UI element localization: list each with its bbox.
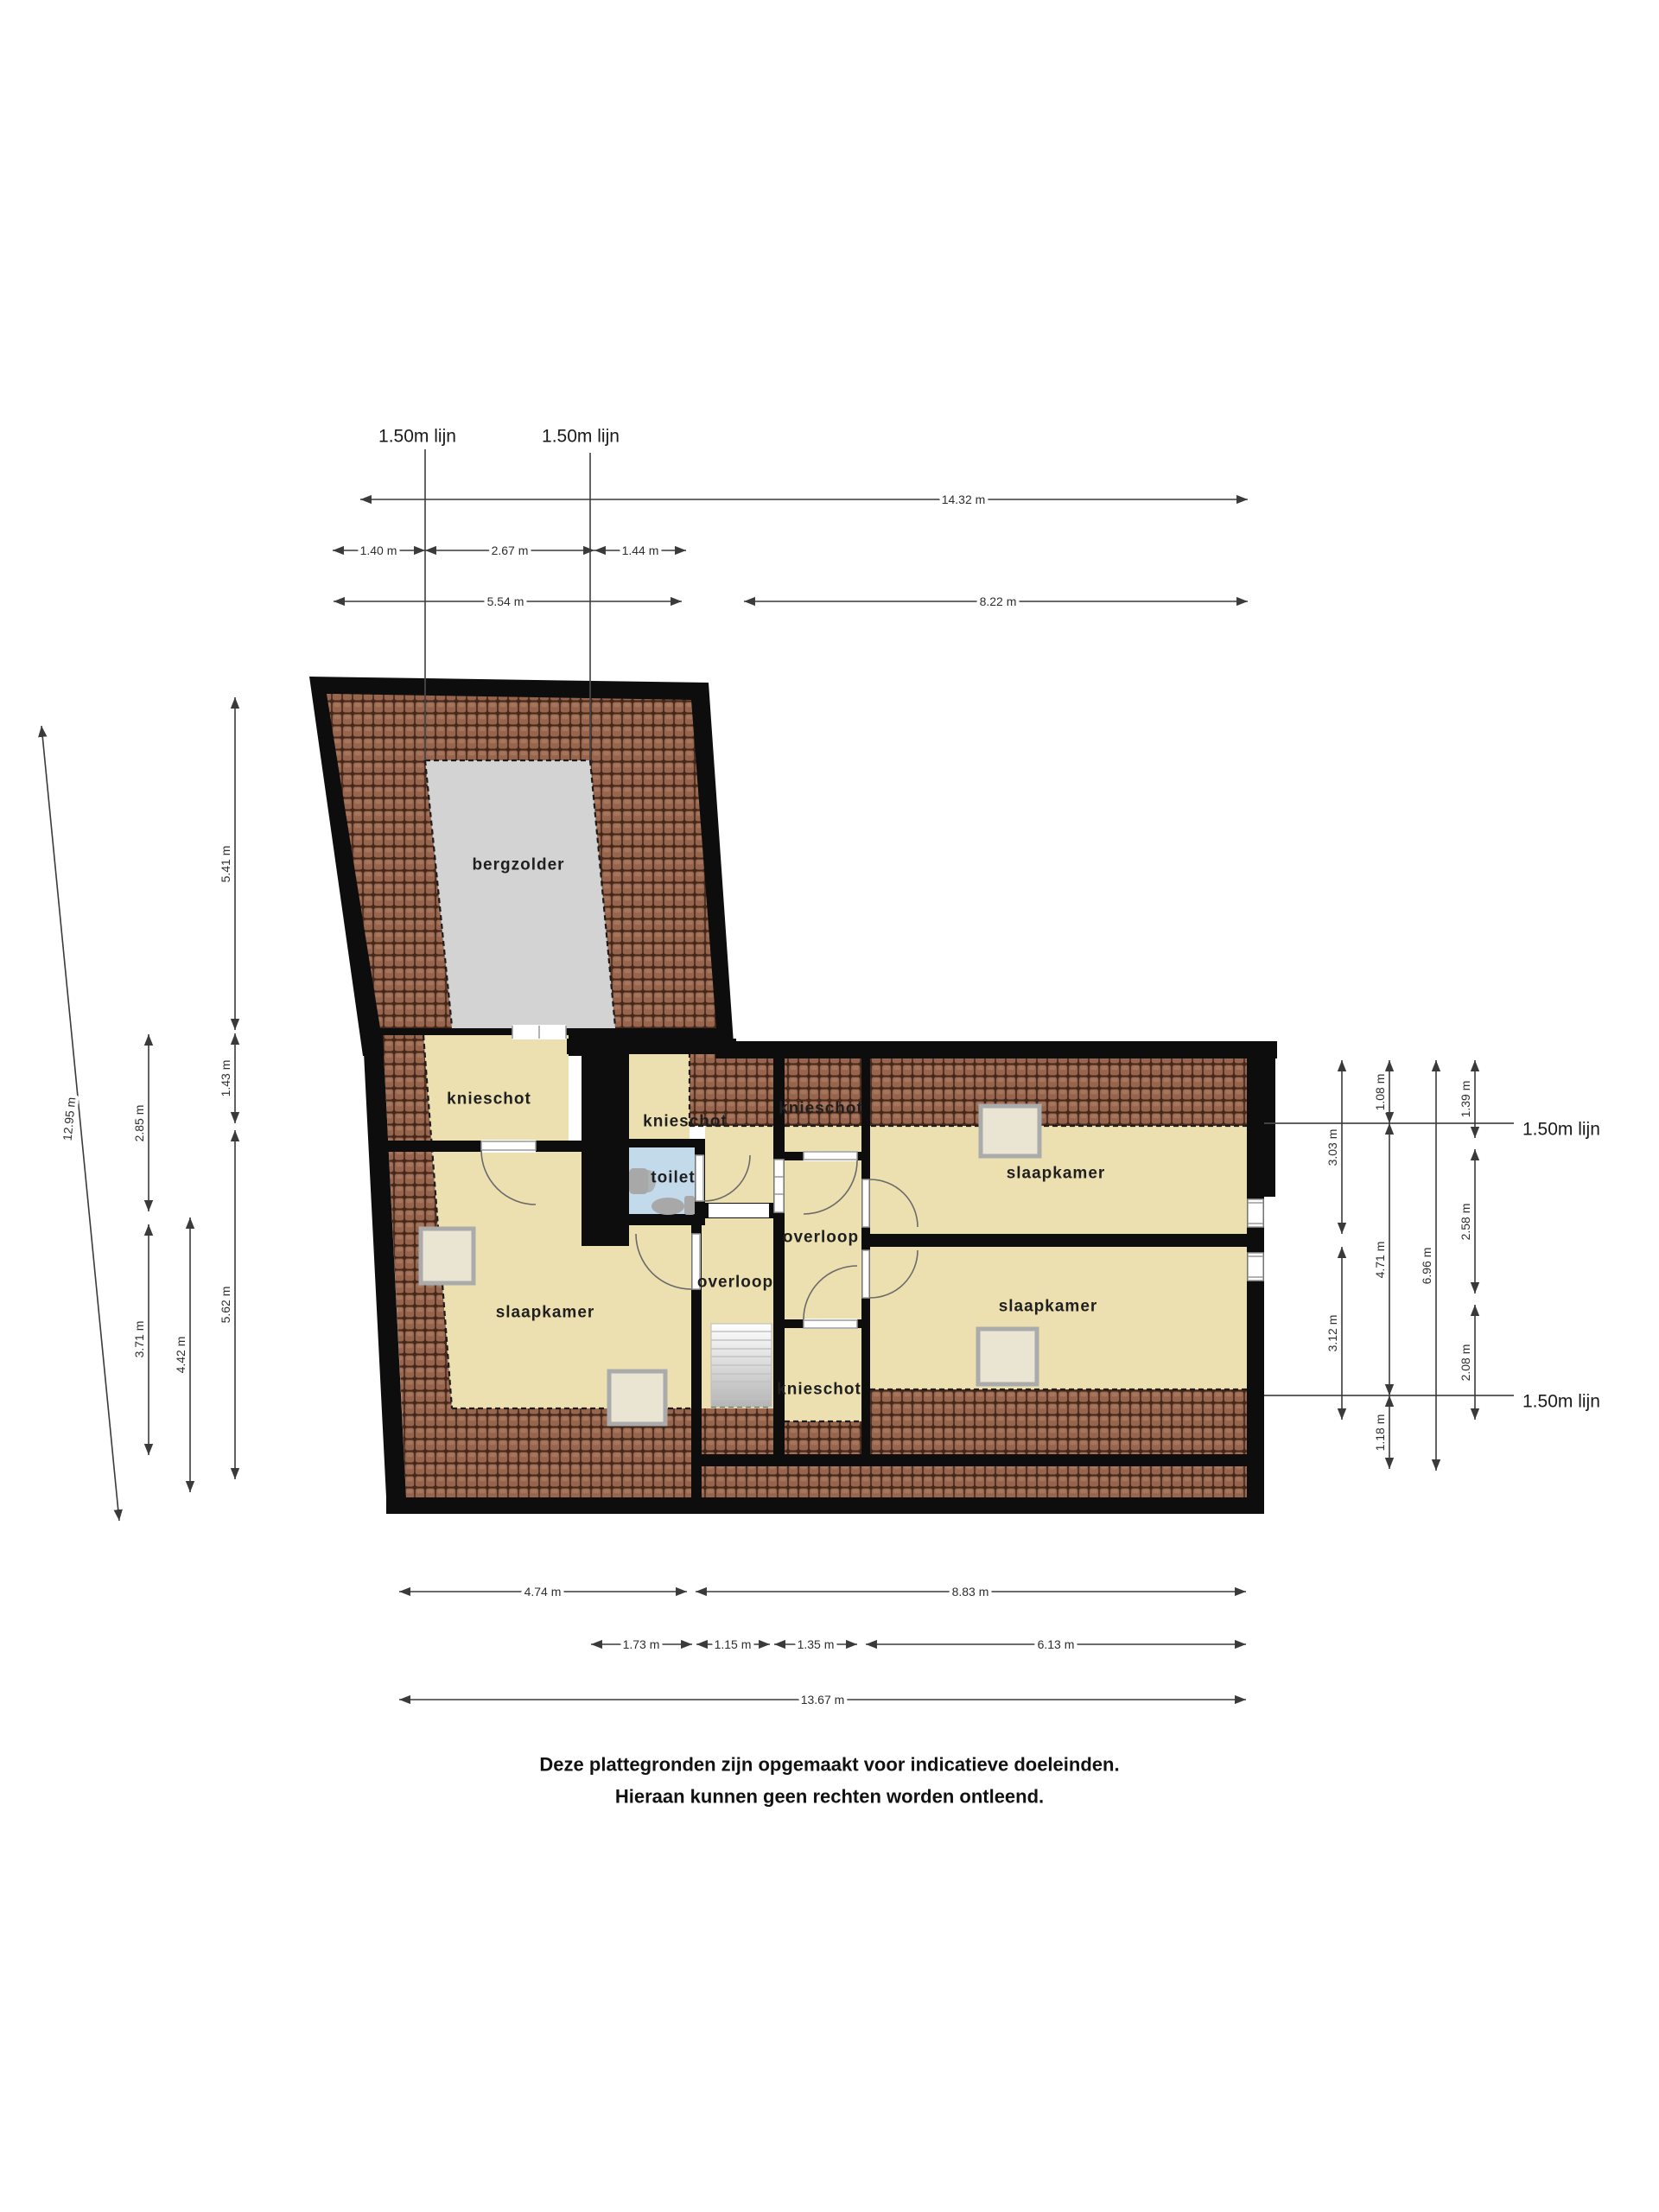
dim-label: 1.08 m [1373,1074,1387,1111]
dim-label: 1.44 m [622,543,659,557]
room-label-attic: bergzolder [472,856,564,874]
disclaimer-line-1: Deze plattegronden zijn opgemaakt voor i… [539,1754,1119,1776]
dim-label: 1.35 m [798,1637,835,1651]
disclaimer-line-2: Hieraan kunnen geen rechten worden ontle… [615,1786,1044,1808]
landing-left-upper-floor [705,1126,773,1203]
dim-label: 6.13 m [1038,1637,1075,1651]
door-leaf-icon [696,1155,703,1201]
wc-tank-icon [684,1196,695,1215]
wide-passage [709,1204,769,1217]
bottom-outer-wall [386,1497,1264,1514]
door-leaf-icon [862,1179,869,1227]
dim-label: 5.62 m [219,1287,232,1324]
dim-label: 8.22 m [980,594,1017,608]
room-label-bedroom: slaapkamer [999,1298,1098,1316]
stairwell-core-wall [582,1037,629,1246]
dim-label: 6.96 m [1420,1248,1433,1285]
kneewall-room-bottom [785,1328,861,1421]
cupboard-door-icon [774,1160,784,1212]
door-leaf-icon [862,1250,869,1298]
room-label-kneewall: knieschot [447,1090,531,1109]
dim-label: 3.03 m [1325,1129,1339,1166]
dim-label: 2.67 m [492,543,529,557]
roof-window-icon [978,1329,1037,1384]
height-line-label: 1.50m lijn [542,427,620,447]
door-leaf-icon [804,1152,857,1160]
window-icon [1248,1199,1263,1227]
height-line-label: 1.50m lijn [1522,1120,1600,1140]
bottom-eave-roof-band [702,1466,1255,1497]
dim-label: 1.18 m [1373,1414,1387,1452]
floorplan-page: 1.50m lijn 1.50m lijn 1.50m lijn 1.50m l… [0,0,1659,2212]
dim-label: 2.85 m [132,1105,146,1142]
dim-label: 4.71 m [1373,1242,1387,1279]
door-leaf-icon [481,1141,536,1150]
dim-label: 13.67 m [801,1693,845,1707]
corridor-roof-band [785,1421,861,1454]
dimensions-left: 12.95 m 5.41 m 1.43 m 2.85 m 5.62 m 3.71… [41,697,235,1521]
height-line-label: 1.50m lijn [378,427,456,447]
room-label-toilet: toilet [651,1169,695,1187]
dim-label: 3.12 m [1325,1315,1339,1352]
dim-label: 1.73 m [623,1637,660,1651]
door-leaf-icon [804,1320,857,1328]
dim-label: 2.58 m [1459,1204,1472,1241]
dimensions-right: 3.03 m 3.12 m 1.08 m 4.71 m 1.18 m 6.96 … [1325,1060,1475,1471]
dim-label: 12.95 m [60,1096,79,1141]
roof-window-icon [981,1106,1039,1156]
inner-bottom-wall [702,1454,1255,1466]
dimensions-top: 14.32 m 1.40 m 2.67 m 1.44 m 5.54 m 8.22… [333,493,1248,608]
roof-window-icon [421,1229,474,1283]
window-icon [1248,1253,1263,1281]
dim-label: 5.54 m [487,594,524,608]
dim-label: 1.39 m [1459,1081,1472,1118]
toilet-top-wall [629,1139,705,1147]
dimensions-bottom: 4.74 m 8.83 m 1.73 m 1.15 m 1.35 m 6.13 … [399,1585,1246,1707]
wc-bowl-icon [652,1198,684,1215]
dim-label: 3.71 m [132,1321,146,1358]
height-line-label: 1.50m lijn [1522,1392,1600,1412]
dim-label: 1.43 m [219,1060,232,1097]
room-label-landing: overloop [697,1274,773,1292]
bottom-right-roof-band [870,1389,1249,1454]
attic-room [425,760,615,1028]
bedroom-lower-right-floor [870,1247,1247,1389]
dim-label: 1.40 m [360,543,397,557]
stair-roof-band [702,1408,773,1454]
dim-label: 14.32 m [942,493,986,506]
dim-label: 2.08 m [1459,1344,1472,1382]
dim-label: 8.83 m [952,1585,989,1599]
dim-label: 1.15 m [715,1637,752,1651]
disclaimer: Deze plattegronden zijn opgemaakt voor i… [539,1754,1119,1808]
room-label-kneewall: knieschot [777,1381,861,1399]
corridor-top-strip [785,1126,861,1152]
floorplan-drawing: 1.50m lijn 1.50m lijn 1.50m lijn 1.50m l… [0,0,1659,2212]
room-label-kneewall: knieschot [643,1113,728,1131]
kneewall-room-left [423,1035,569,1141]
stairs [711,1324,772,1407]
room-label-landing: overloop [783,1229,859,1247]
top-outer-wall [715,1041,1277,1058]
dim-label: 5.41 m [219,846,232,883]
room-label-bedroom: slaapkamer [496,1304,595,1322]
bedroom-divider-wall [870,1234,1255,1247]
roof-window-icon [609,1371,665,1424]
right-outer-wall-thick [1264,1041,1275,1197]
room-label-bedroom: slaapkamer [1007,1165,1106,1183]
room-label-kneewall: knieschot [779,1100,863,1118]
dim-label: 4.74 m [524,1585,562,1599]
dim-label: 4.42 m [174,1337,188,1374]
